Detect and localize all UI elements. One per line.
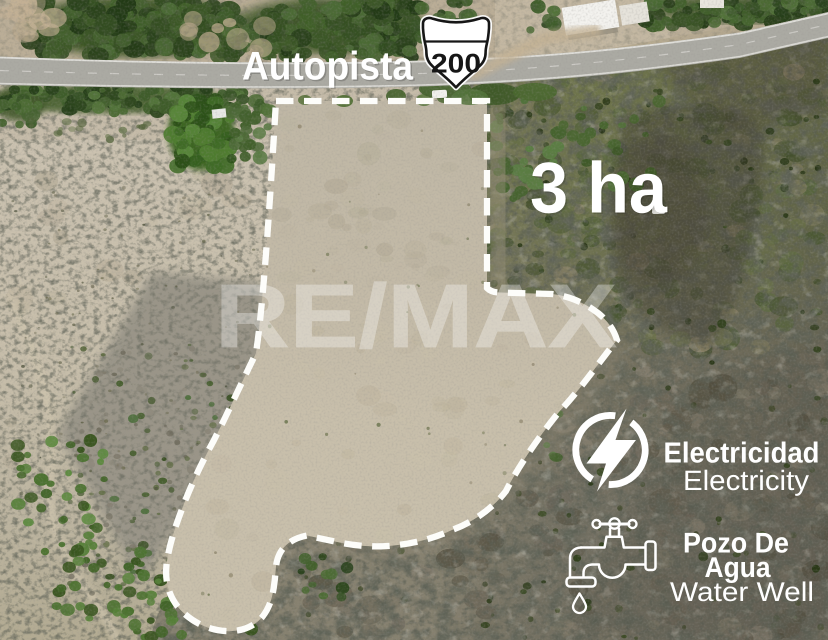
svg-text:3 ha: 3 ha [530,149,668,229]
svg-text:Water Well: Water Well [670,577,814,607]
svg-text:Autopista: Autopista [242,45,414,89]
svg-text:200: 200 [431,49,481,79]
svg-text:Electricity: Electricity [683,465,809,496]
svg-text:RE/MAX: RE/MAX [215,267,617,367]
